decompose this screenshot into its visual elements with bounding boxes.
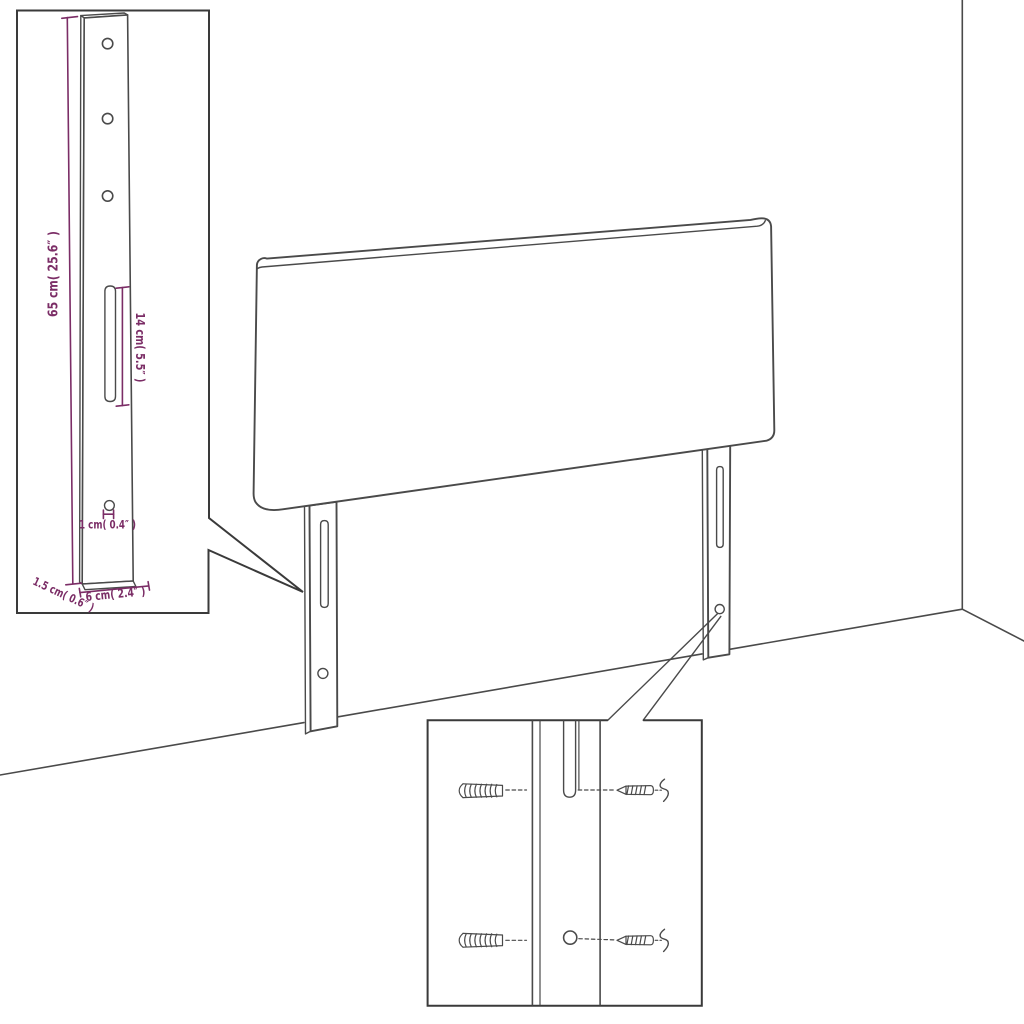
right-leg <box>702 445 730 660</box>
wall-plug-ribs <box>465 934 497 947</box>
mounting-callout-line-right <box>643 616 721 720</box>
wall-plug-ribs <box>465 784 497 797</box>
board-outline <box>254 218 775 510</box>
floor-line-right <box>962 609 1024 641</box>
screw-top <box>617 779 668 801</box>
alignment-dashes <box>506 790 615 940</box>
inset-leg-hole-lower <box>102 191 112 201</box>
inset-leg-strip <box>532 721 600 1005</box>
floor-line-left <box>0 723 304 775</box>
inset-leg-front-face <box>82 15 133 584</box>
headboard-assembly-diagram: 65 cm( 25.6″ ) 14 cm( 5.5″ ) 1 cm( 0.4″ … <box>0 0 1024 1024</box>
floor-line-near-corner <box>730 609 962 649</box>
floor-line-middle <box>338 654 702 717</box>
headboard-board <box>254 218 775 510</box>
hole-diameter-label: 1 cm( 0.4″ ) <box>79 518 136 532</box>
left-leg <box>305 502 338 734</box>
wall-plug-top <box>459 784 502 798</box>
inset-leg-hole-top <box>102 38 112 48</box>
right-leg-hole <box>715 605 724 614</box>
mounting-detail-inset <box>428 614 721 1006</box>
left-leg-front-face <box>310 502 338 732</box>
leg-height-label: 65 cm( 25.6″ ) <box>47 231 62 317</box>
wall-plug-cap <box>459 933 463 947</box>
mounting-inset-frame <box>428 720 702 1006</box>
slot-length-label: 14 cm( 5.5″ ) <box>133 313 147 383</box>
inset-leg-small-hole <box>105 501 115 511</box>
inset-leg-drawing <box>80 13 136 590</box>
wall-plug-cap <box>459 784 463 798</box>
dash-hole-to-screw <box>579 939 615 940</box>
wall-plug-bottom <box>459 933 502 947</box>
screw-bottom <box>617 929 668 951</box>
strip-hole <box>564 931 577 944</box>
strip-slot <box>564 721 576 797</box>
inset-leg-hole-middle <box>102 113 112 123</box>
diagram-canvas: 65 cm( 25.6″ ) 14 cm( 5.5″ ) 1 cm( 0.4″ … <box>0 0 1024 1024</box>
left-leg-hole <box>318 668 328 678</box>
right-leg-front-face <box>707 445 730 657</box>
